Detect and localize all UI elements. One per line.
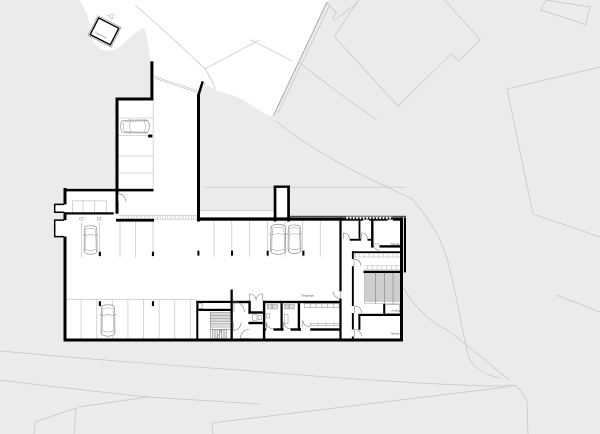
- svg-text:Tiefgarage: Tiefgarage: [301, 293, 314, 297]
- svg-text:Technik: Technik: [390, 332, 400, 336]
- svg-text:Aufzug: Aufzug: [391, 309, 400, 313]
- svg-text:Technik: Technik: [390, 242, 400, 246]
